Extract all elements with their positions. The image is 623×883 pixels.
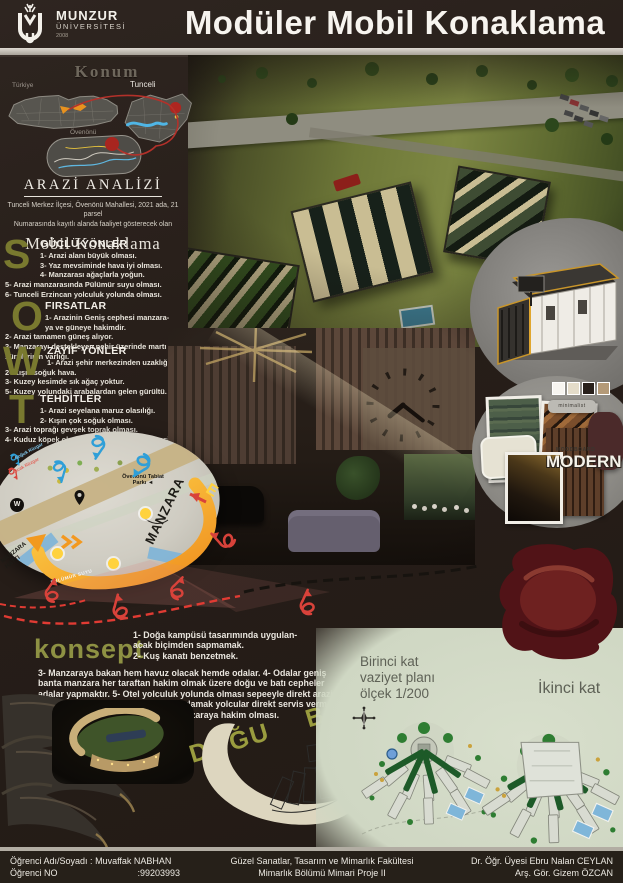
swot-letter-o: O [11, 296, 43, 337]
arazi-title: ARAZİ ANALİZİ [24, 177, 162, 197]
logo-name: MUNZUR [56, 9, 126, 22]
warm-wind-arrow-icon [107, 589, 140, 622]
course-label: Mimarlık Bölümü Mimari Proje II [212, 867, 432, 879]
student-name-value: Muvaffak NABHAN [95, 856, 171, 866]
night-building-render [52, 700, 194, 784]
ground-analysis-overlay [0, 550, 480, 636]
red-armchair-render [492, 538, 623, 668]
swot-item: 1- Arazi alanı büyük olması. [40, 251, 199, 261]
faculty-label: Güzel Sanatlar, Tasarım ve Mimarlık Fakü… [212, 855, 432, 867]
page-title: Modüler Mobil Konaklama [175, 4, 615, 42]
student-no-label: Öğrenci NO [10, 867, 58, 879]
header: MUNZUR ÜNİVERSİTESİ 2008 Modüler Mobil K… [0, 0, 623, 48]
second-floor-plan-drawing [472, 704, 623, 864]
konum-title: Konum [42, 62, 172, 82]
swot-letter-w: W [3, 341, 42, 382]
west-badge-icon: W [10, 498, 24, 512]
color-chips [552, 382, 610, 395]
konsept-items-top: 1- Doğa kampüsü tasarımında uygulan- aca… [133, 630, 343, 661]
turkey-map [4, 88, 122, 134]
swot-item: 4- Manzarası ağaçlarla yoğun. [40, 270, 199, 280]
swot-letter-s: S [3, 234, 30, 275]
konsept-title: konsept [34, 634, 145, 665]
advisor-2: Arş. Gör. Gizem ÖZCAN [433, 867, 613, 879]
minimalist-tag: minimalist [548, 400, 596, 413]
moodboard-style-label: MODERN [546, 452, 622, 472]
swot-heading-s: GÜÇLÜ YÖNLER [40, 238, 199, 250]
swot-strengths: S GÜÇLÜ YÖNLER 1- Arazi alanı büyük olma… [3, 238, 199, 299]
arazi-intro: Tunceli Merkez İlçesi, Övenönü Mahallesi… [0, 201, 186, 229]
map-pin-icon [74, 490, 85, 505]
student-name-label: Öğrenci Adı/Soyadı : [10, 856, 93, 866]
swot-letter-t: T [9, 389, 34, 430]
module-axon-drawing [478, 248, 623, 373]
advisor-1: Dr. Öğr. Üyesi Ebru Nalan CEYLAN [433, 855, 613, 867]
munzur-logo-icon [8, 3, 52, 45]
node-dot [140, 508, 151, 519]
logo-year: 2008 [56, 33, 126, 39]
student-no-value: :99203993 [137, 867, 180, 879]
logo-subtitle: ÜNİVERSİTESİ [56, 22, 126, 33]
district-map [45, 132, 143, 181]
poster-root: MUNZUR ÜNİVERSİTESİ 2008 Modüler Mobil K… [0, 0, 623, 883]
cold-wind-arrow-icon [43, 459, 71, 487]
swot-item: 3- Yaz mevsiminde hava iyi olması. [40, 261, 199, 271]
swot-heading-o: FIRSATLAR [45, 300, 199, 312]
footer: Öğrenci Adı/Soyadı : Muvaffak NABHAN Öğr… [0, 851, 623, 883]
second-floor-plan-label: İkinci kat [538, 680, 600, 698]
warm-wind-arrow-icon [295, 585, 328, 618]
swot-item: 5- Arazi manzarasında Pülümür suyu olmas… [5, 280, 199, 290]
